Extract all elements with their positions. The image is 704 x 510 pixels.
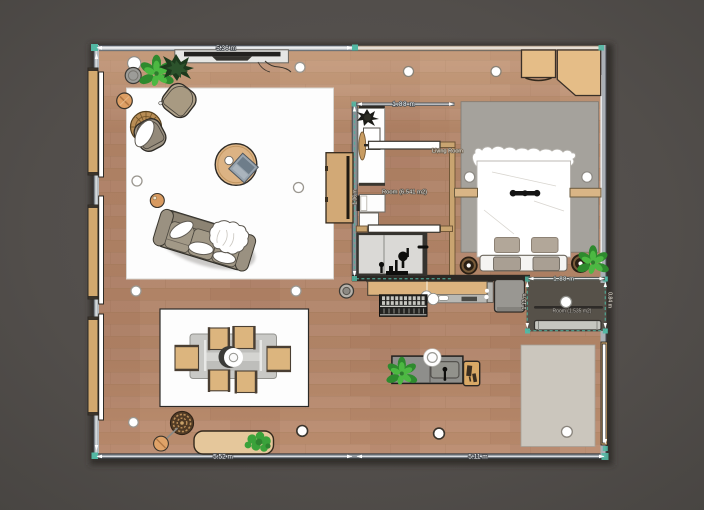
svg-text:Room (1.535 m2): Room (1.535 m2) xyxy=(553,309,592,315)
svg-text:0.84 m: 0.84 m xyxy=(607,292,613,308)
svg-text:1.88 m: 1.88 m xyxy=(392,102,415,108)
svg-text:1.06 m: 1.06 m xyxy=(353,189,359,204)
svg-text:1.88 m: 1.88 m xyxy=(553,277,574,283)
svg-text:1.13 m: 1.13 m xyxy=(522,294,528,310)
svg-text:Living Room: Living Room xyxy=(432,149,463,155)
svg-text:5.52 m: 5.52 m xyxy=(213,454,233,461)
svg-text:5.11 m: 5.11 m xyxy=(468,454,487,461)
svg-text:Room (6.541 m2): Room (6.541 m2) xyxy=(382,190,427,196)
svg-text:5.36 m: 5.36 m xyxy=(216,45,236,52)
